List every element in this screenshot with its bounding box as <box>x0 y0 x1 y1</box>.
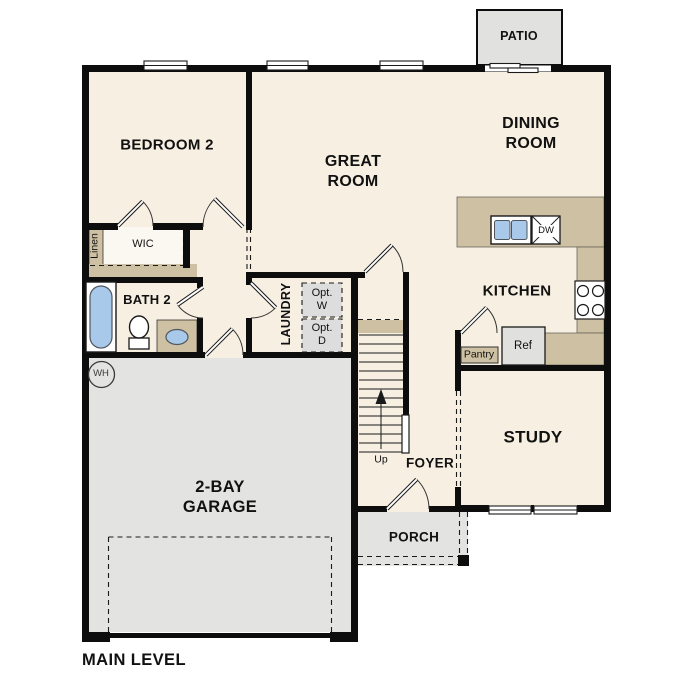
wall-kitchen-study <box>455 365 611 371</box>
wall-study-left-a <box>455 371 461 391</box>
floor-plan: BEDROOM 2 GREAT ROOM DINING ROOM KITCHEN… <box>0 0 687 687</box>
wall-stair-right <box>403 272 409 415</box>
burner <box>593 286 604 297</box>
wall-foyer-front-a <box>351 506 387 512</box>
stair-railing <box>402 415 409 453</box>
water-heater-circle <box>89 362 115 388</box>
patio-slider-pane-2 <box>508 68 538 73</box>
refrigerator-box <box>502 327 545 365</box>
patio-slab <box>477 10 562 65</box>
garage-slab <box>89 358 351 632</box>
wall-bedroom-greatroom <box>246 65 252 230</box>
kitchen-counter-lower <box>545 333 604 365</box>
optional-dryer-box <box>302 319 342 352</box>
wall-bedroom-south-a <box>89 223 118 230</box>
wall-garage-south-left <box>82 632 110 642</box>
patio-slider-pane-1 <box>490 64 520 69</box>
stair-landing <box>358 320 403 333</box>
plan-title: MAIN LEVEL <box>82 651 186 670</box>
wall-wic-right <box>183 227 190 268</box>
wall-garage-south-right <box>330 632 358 642</box>
dishwasher-box <box>532 216 560 244</box>
sink-basin-right <box>512 221 528 240</box>
vanity-sink <box>166 330 188 345</box>
toilet-tank <box>129 338 149 349</box>
wall-bedroom-south-b <box>153 223 203 230</box>
burner <box>593 305 604 316</box>
linen-closet <box>89 228 103 265</box>
garage-door-header <box>108 633 332 638</box>
wall-bath-right-b <box>197 318 203 353</box>
porch-column <box>458 555 469 566</box>
bathtub <box>90 286 112 348</box>
wic-floor <box>103 227 183 265</box>
wall-study-south-c <box>577 505 611 512</box>
pantry-label-box <box>461 347 498 363</box>
wall-garage-right <box>351 272 358 642</box>
wall-laundry-north <box>246 272 365 278</box>
toilet-bowl <box>130 316 149 338</box>
wall-pantry-left <box>455 330 461 371</box>
sink-basin-left <box>495 221 511 240</box>
burner <box>578 305 589 316</box>
floor-plan-drawing <box>0 0 687 687</box>
wall-study-south-a <box>455 505 489 512</box>
burner <box>578 286 589 297</box>
wall-garage-north-a <box>82 352 205 358</box>
stove <box>575 281 605 319</box>
optional-washer-box <box>302 283 342 317</box>
porch-slab <box>358 512 468 566</box>
wall-garage-north-b <box>243 352 358 358</box>
